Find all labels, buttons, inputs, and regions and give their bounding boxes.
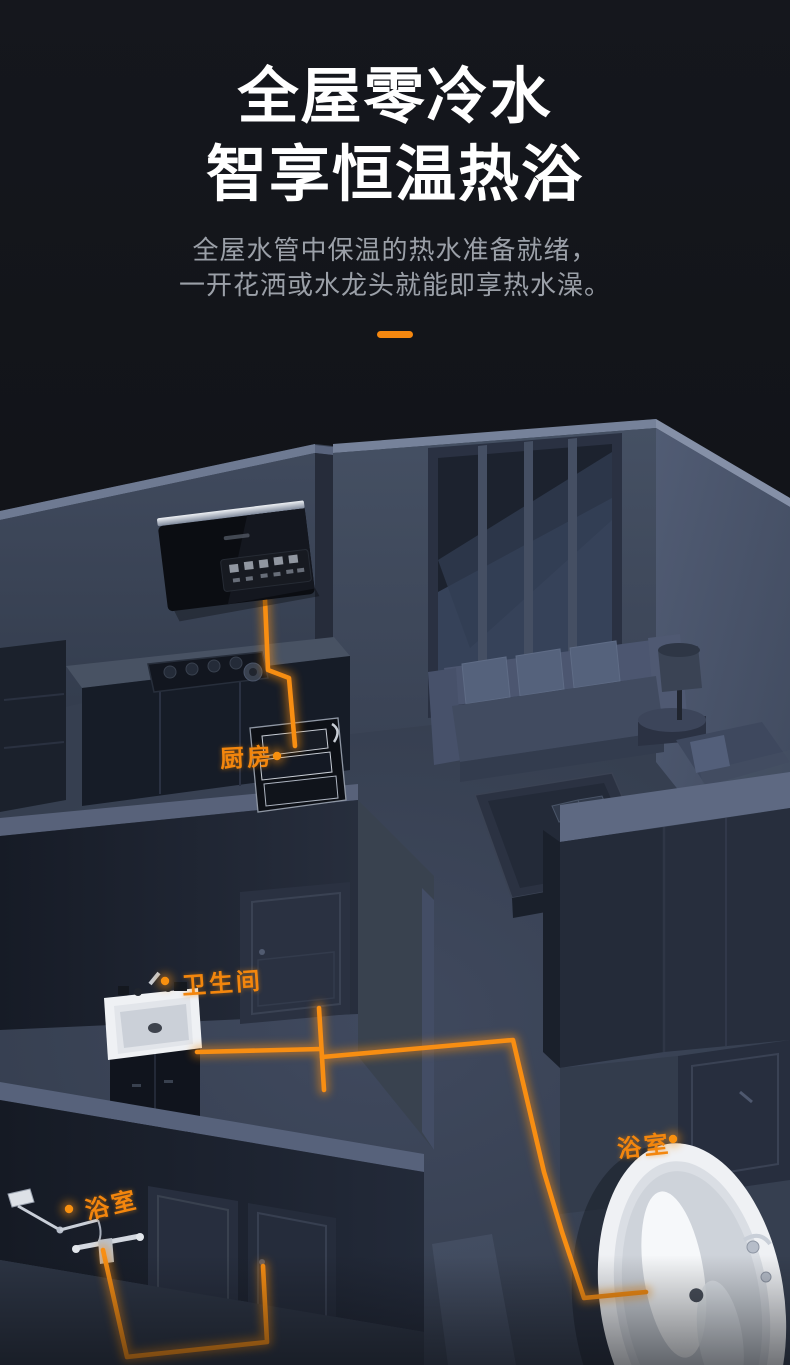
- header: 全屋零冷水 智享恒温热浴 全屋水管中保温的热水准备就绪， 一开花洒或水龙头就能即…: [0, 58, 790, 338]
- bottom-vignette: [0, 1255, 790, 1365]
- title-line-1: 全屋零冷水: [237, 61, 552, 132]
- door-1: [240, 882, 350, 1024]
- subtitle-line-2: 一开花洒或水龙头就能即享热水澡。: [179, 271, 611, 301]
- kitchen-label: 厨房: [219, 743, 274, 774]
- marketing-page: 厨房 厨房 卫生间 卫生间 浴室 浴室 浴室 浴室 全屋零冷水 智享恒温热浴 全…: [0, 0, 790, 1365]
- subtitle-line-1: 全屋水管中保温的热水准备就绪，: [192, 236, 597, 266]
- title-line-2: 智享恒温热浴: [206, 139, 584, 210]
- washroom-label: 卫生间: [181, 967, 264, 1001]
- wardrobe: [543, 772, 790, 1068]
- accent-divider: [377, 331, 413, 338]
- page-title: 全屋零冷水 智享恒温热浴: [0, 58, 790, 214]
- bathroom-main-label: 浴室: [616, 1130, 673, 1163]
- subtitle: 全屋水管中保温的热水准备就绪， 一开花洒或水龙头就能即享热水澡。: [0, 234, 790, 304]
